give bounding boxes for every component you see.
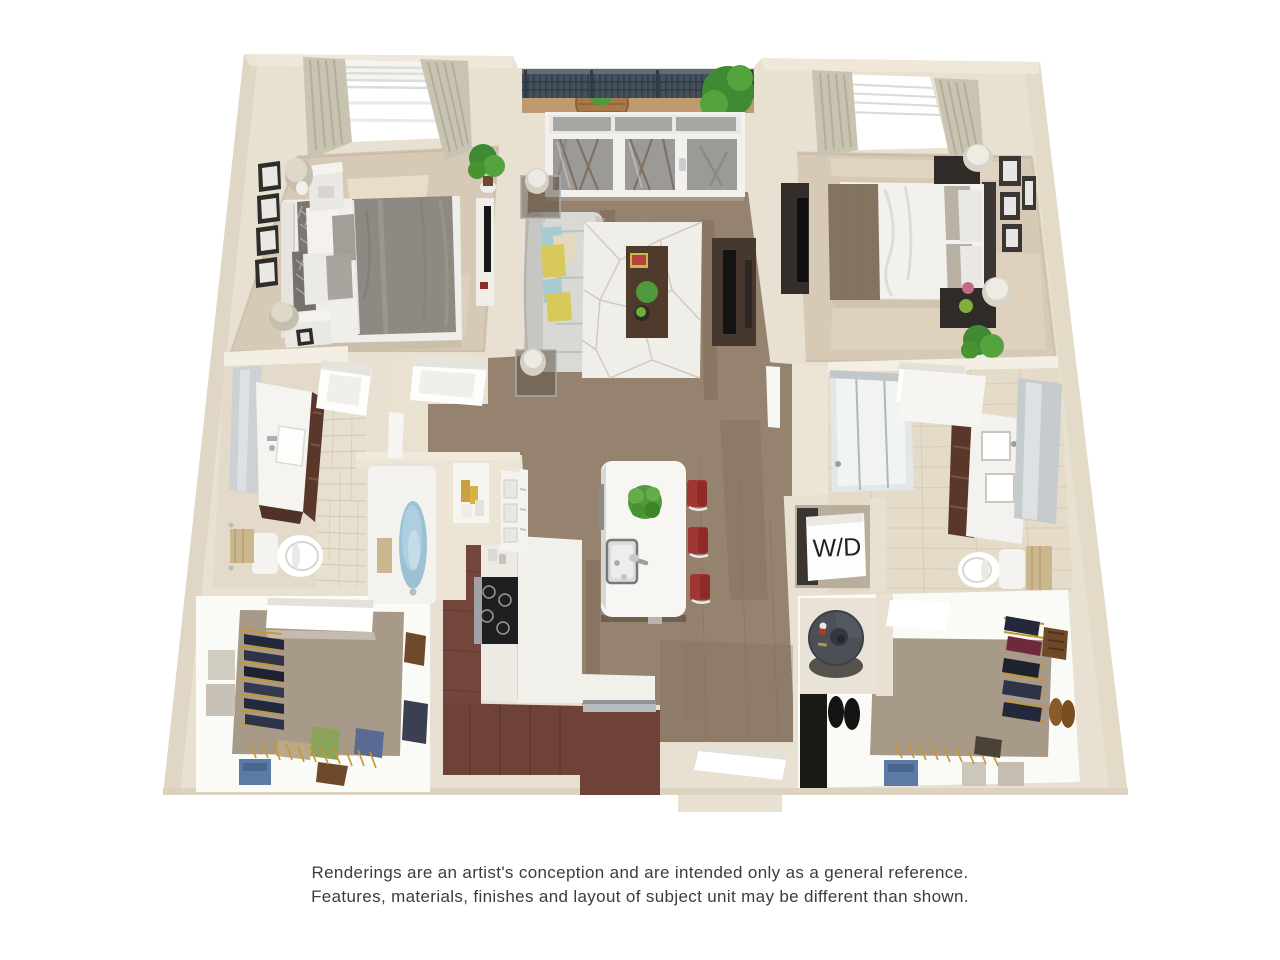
svg-text:W/D: W/D bbox=[812, 533, 862, 563]
